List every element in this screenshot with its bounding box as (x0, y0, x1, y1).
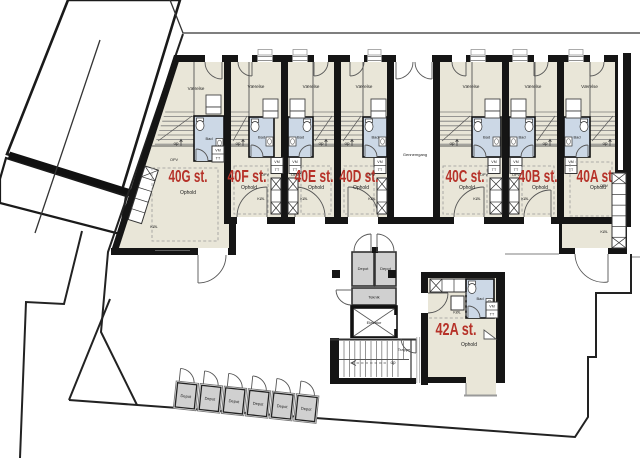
svg-text:Værelse: Værelse (356, 84, 373, 89)
svg-text:Teknik: Teknik (368, 295, 379, 300)
svg-text:Bad: Bad (258, 135, 265, 140)
svg-text:Bad: Bad (518, 135, 525, 140)
svg-text:KØL: KØL (150, 225, 158, 229)
svg-text:Ophold: Ophold (241, 185, 257, 191)
svg-text:Ophold: Ophold (308, 185, 324, 191)
svg-text:KØL: KØL (257, 197, 265, 201)
svg-text:VM: VM (292, 160, 297, 164)
svg-text:KØL: KØL (368, 197, 376, 201)
svg-text:Gennemgang: Gennemgang (403, 152, 427, 157)
svg-text:40B st.: 40B st. (519, 166, 558, 186)
svg-text:VM: VM (377, 160, 382, 164)
svg-text:Værelse: Værelse (581, 84, 598, 89)
svg-text:Bad: Bad (483, 135, 490, 140)
svg-text:Værelse: Værelse (463, 84, 480, 89)
svg-text:40C st.: 40C st. (446, 166, 485, 186)
svg-text:Ophold: Ophold (459, 185, 475, 191)
svg-text:OPV: OPV (291, 173, 299, 177)
svg-text:KØL: KØL (521, 197, 529, 201)
svg-text:Bad: Bad (476, 296, 483, 301)
svg-text:KØL: KØL (473, 197, 481, 201)
svg-text:Værelse: Værelse (188, 86, 205, 91)
svg-text:op: op (344, 141, 350, 146)
svg-text:Bad: Bad (573, 135, 580, 140)
svg-text:op: op (235, 141, 241, 146)
svg-text:KØL: KØL (600, 230, 608, 234)
svg-text:KØL: KØL (453, 311, 461, 315)
svg-text:Værelse: Værelse (248, 84, 265, 89)
svg-text:42A st.: 42A st. (436, 319, 477, 339)
svg-text:VM: VM (491, 160, 496, 164)
svg-text:Depot: Depot (358, 266, 370, 271)
svg-text:Værelse: Værelse (303, 84, 320, 89)
svg-text:Bad: Bad (297, 135, 304, 140)
svg-text:OPV: OPV (261, 173, 269, 177)
svg-text:op: op (542, 141, 548, 146)
svg-text:OPV: OPV (367, 173, 375, 177)
svg-text:Bad: Bad (205, 136, 212, 141)
svg-text:VM: VM (489, 305, 494, 309)
svg-text:OPV: OPV (600, 184, 608, 188)
svg-text:OPV: OPV (170, 158, 178, 162)
svg-text:KØL: KØL (300, 197, 308, 201)
svg-text:Bad: Bad (371, 135, 378, 140)
svg-text:op: op (602, 141, 608, 146)
svg-text:Elevator: Elevator (367, 320, 382, 325)
svg-text:op: op (449, 141, 455, 146)
svg-text:OPV: OPV (512, 173, 520, 177)
svg-text:Ophold: Ophold (461, 342, 477, 348)
svg-text:VM: VM (274, 160, 279, 164)
svg-text:VM: VM (215, 149, 220, 153)
svg-text:Ophold: Ophold (532, 185, 548, 191)
svg-text:op: op (390, 360, 396, 365)
svg-text:Ophold: Ophold (353, 185, 369, 191)
svg-text:VM: VM (513, 160, 518, 164)
svg-text:Ophold: Ophold (180, 190, 196, 196)
svg-text:40G st.: 40G st. (169, 166, 208, 186)
svg-text:Værelse: Værelse (525, 84, 542, 89)
svg-text:40E st.: 40E st. (295, 166, 334, 186)
svg-text:op: op (173, 141, 179, 146)
svg-text:40A st.: 40A st. (577, 166, 616, 186)
svg-text:OPV: OPV (480, 173, 488, 177)
svg-text:op: op (318, 141, 324, 146)
